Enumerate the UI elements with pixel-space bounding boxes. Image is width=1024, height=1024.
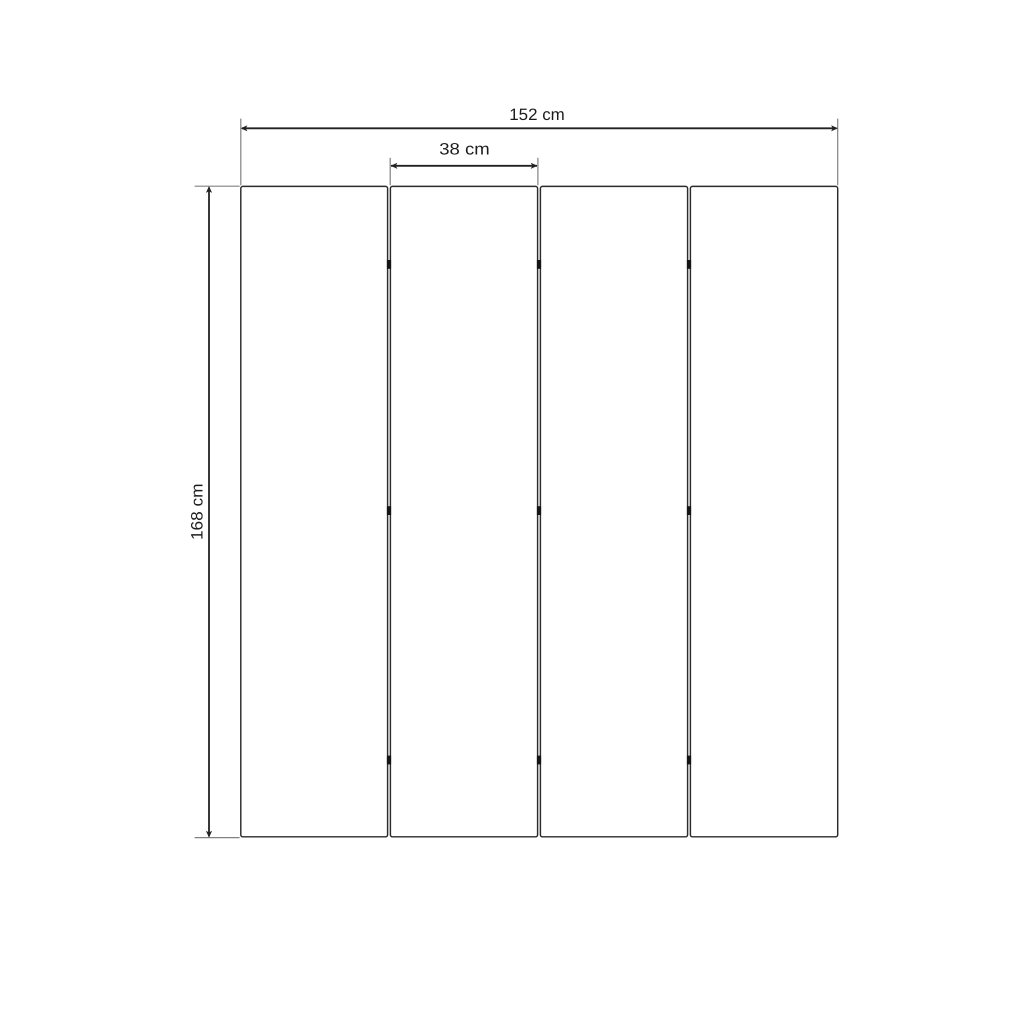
svg-text:168 cm: 168 cm	[188, 484, 206, 541]
svg-text:152 cm: 152 cm	[509, 106, 565, 124]
svg-text:38 cm: 38 cm	[439, 141, 490, 159]
